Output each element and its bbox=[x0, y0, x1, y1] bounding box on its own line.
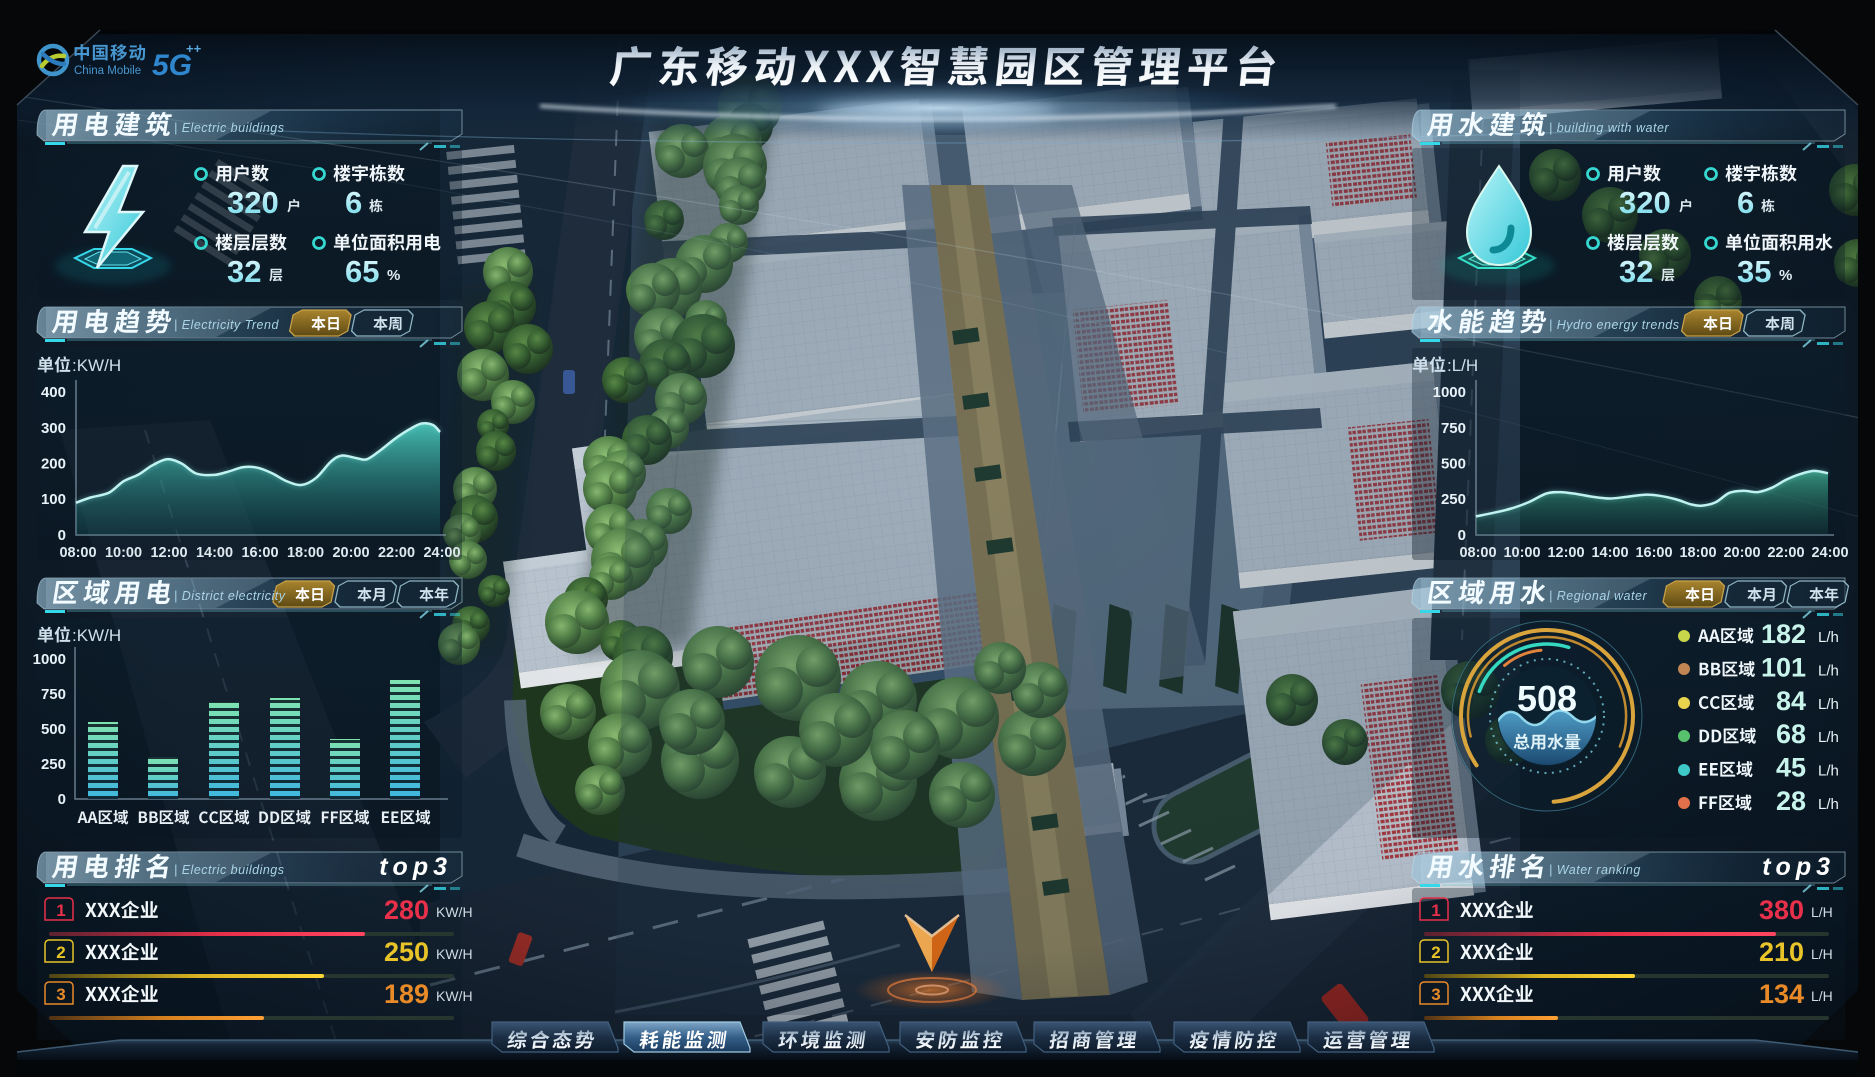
svg-text:top3: top3 bbox=[379, 853, 452, 881]
svg-text:14:00: 14:00 bbox=[196, 545, 233, 561]
svg-text:500: 500 bbox=[1441, 456, 1466, 473]
svg-text:32: 32 bbox=[1619, 254, 1653, 289]
svg-text:35: 35 bbox=[1737, 254, 1771, 289]
svg-text:750: 750 bbox=[41, 686, 66, 703]
svg-text:750: 750 bbox=[1441, 420, 1466, 437]
svg-text:22:00: 22:00 bbox=[1767, 545, 1804, 561]
svg-text::KW/H: :KW/H bbox=[72, 626, 121, 645]
svg-text:top3: top3 bbox=[1762, 853, 1835, 881]
svg-text:400: 400 bbox=[41, 384, 66, 401]
svg-text:500: 500 bbox=[41, 721, 66, 738]
svg-text:280: 280 bbox=[384, 895, 429, 925]
svg-text::KW/H: :KW/H bbox=[72, 356, 121, 375]
svg-text:1000: 1000 bbox=[33, 651, 66, 668]
svg-text:6: 6 bbox=[1737, 185, 1754, 220]
svg-text:%: % bbox=[387, 267, 400, 284]
svg-text:2: 2 bbox=[56, 943, 65, 962]
svg-text:%: % bbox=[1779, 267, 1792, 284]
svg-text:KW/H: KW/H bbox=[436, 988, 473, 1004]
svg-text:0: 0 bbox=[58, 791, 66, 808]
svg-text:10:00: 10:00 bbox=[105, 545, 142, 561]
svg-text:| Electricity Trend: | Electricity Trend bbox=[174, 318, 279, 332]
svg-text:250: 250 bbox=[1441, 491, 1466, 508]
svg-text:L/h: L/h bbox=[1818, 696, 1839, 713]
svg-text:22:00: 22:00 bbox=[378, 545, 415, 561]
svg-text:508: 508 bbox=[1517, 678, 1577, 719]
svg-text:200: 200 bbox=[41, 456, 66, 473]
svg-text:| Hydro energy trends: | Hydro energy trends bbox=[1549, 318, 1679, 332]
svg-text:| Water ranking: | Water ranking bbox=[1549, 863, 1641, 877]
svg-text:0: 0 bbox=[1458, 527, 1466, 544]
svg-text:L/H: L/H bbox=[1811, 946, 1833, 962]
svg-text:6: 6 bbox=[345, 185, 362, 220]
svg-text:2: 2 bbox=[1431, 943, 1440, 962]
svg-text:08:00: 08:00 bbox=[1459, 545, 1496, 561]
svg-text:L/h: L/h bbox=[1818, 629, 1839, 646]
svg-text:| Electric buildings: | Electric buildings bbox=[174, 863, 285, 877]
svg-text:210: 210 bbox=[1759, 937, 1804, 967]
svg-text:08:00: 08:00 bbox=[59, 545, 96, 561]
svg-text:24:00: 24:00 bbox=[1811, 545, 1848, 561]
svg-text:84: 84 bbox=[1776, 686, 1806, 716]
svg-text:45: 45 bbox=[1776, 753, 1806, 783]
svg-text:3: 3 bbox=[1431, 985, 1440, 1004]
svg-text:20:00: 20:00 bbox=[1723, 545, 1760, 561]
svg-text:250: 250 bbox=[384, 937, 429, 967]
svg-text:12:00: 12:00 bbox=[150, 545, 187, 561]
svg-text:| District electricity: | District electricity bbox=[174, 589, 286, 603]
svg-text:16:00: 16:00 bbox=[1635, 545, 1672, 561]
svg-text:101: 101 bbox=[1761, 652, 1806, 682]
svg-text:100: 100 bbox=[41, 491, 66, 508]
svg-text:1: 1 bbox=[56, 901, 65, 920]
svg-text:320: 320 bbox=[1619, 185, 1671, 220]
svg-text:1000: 1000 bbox=[1433, 384, 1466, 401]
svg-text:16:00: 16:00 bbox=[241, 545, 278, 561]
svg-text:China Mobile: China Mobile bbox=[74, 65, 141, 77]
svg-text:1: 1 bbox=[1431, 901, 1440, 920]
svg-text:12:00: 12:00 bbox=[1547, 545, 1584, 561]
svg-text:28: 28 bbox=[1776, 786, 1806, 816]
svg-text:++: ++ bbox=[186, 41, 202, 56]
svg-text:300: 300 bbox=[41, 420, 66, 437]
svg-text:24:00: 24:00 bbox=[423, 545, 460, 561]
svg-text:320: 320 bbox=[227, 185, 279, 220]
svg-text:182: 182 bbox=[1761, 619, 1806, 649]
svg-text:18:00: 18:00 bbox=[1679, 545, 1716, 561]
svg-text:20:00: 20:00 bbox=[332, 545, 369, 561]
svg-text:KW/H: KW/H bbox=[436, 904, 473, 920]
svg-text:65: 65 bbox=[345, 254, 379, 289]
svg-text:L/h: L/h bbox=[1818, 662, 1839, 679]
svg-text:18:00: 18:00 bbox=[287, 545, 324, 561]
svg-text:L/H: L/H bbox=[1811, 904, 1833, 920]
svg-text:68: 68 bbox=[1776, 719, 1806, 749]
svg-text:L/h: L/h bbox=[1818, 729, 1839, 746]
svg-text:| Electric buildings: | Electric buildings bbox=[174, 121, 285, 135]
svg-text:380: 380 bbox=[1759, 895, 1804, 925]
svg-text:| Regional water: | Regional water bbox=[1549, 589, 1647, 603]
svg-text:L/H: L/H bbox=[1811, 988, 1833, 1004]
svg-text:134: 134 bbox=[1759, 979, 1804, 1009]
svg-text:3: 3 bbox=[56, 985, 65, 1004]
svg-text:189: 189 bbox=[384, 979, 429, 1009]
svg-text:L/h: L/h bbox=[1818, 763, 1839, 780]
svg-text:0: 0 bbox=[58, 527, 66, 544]
svg-text:10:00: 10:00 bbox=[1503, 545, 1540, 561]
svg-text:L/h: L/h bbox=[1818, 796, 1839, 813]
svg-text:14:00: 14:00 bbox=[1591, 545, 1628, 561]
svg-text::L/H: :L/H bbox=[1447, 356, 1478, 375]
svg-text:250: 250 bbox=[41, 756, 66, 773]
svg-text:KW/H: KW/H bbox=[436, 946, 473, 962]
svg-text:| building with water: | building with water bbox=[1549, 121, 1669, 135]
svg-text:32: 32 bbox=[227, 254, 261, 289]
